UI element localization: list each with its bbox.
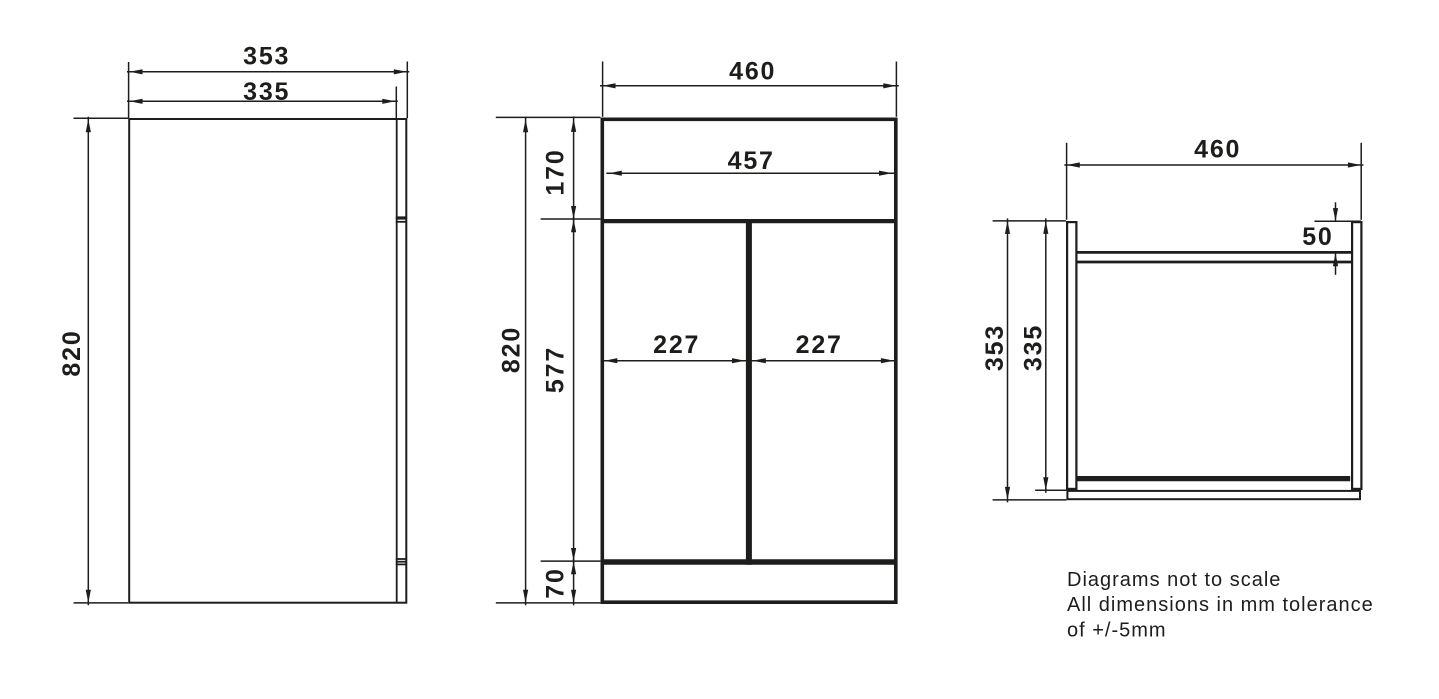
- svg-text:577: 577: [541, 346, 569, 393]
- svg-text:353: 353: [243, 43, 290, 71]
- svg-text:70: 70: [541, 567, 569, 598]
- svg-text:353: 353: [981, 324, 1009, 371]
- svg-text:Diagrams not to scale: Diagrams not to scale: [1067, 569, 1281, 591]
- svg-text:820: 820: [497, 326, 525, 373]
- svg-text:170: 170: [541, 148, 569, 195]
- svg-text:50: 50: [1302, 223, 1333, 251]
- svg-text:All dimensions in mm tolerance: All dimensions in mm tolerance: [1067, 594, 1374, 616]
- svg-text:457: 457: [728, 147, 775, 175]
- svg-text:820: 820: [58, 329, 86, 376]
- svg-text:335: 335: [1020, 324, 1048, 371]
- svg-text:460: 460: [1194, 135, 1241, 163]
- svg-text:of +/-5mm: of +/-5mm: [1067, 619, 1167, 641]
- svg-text:460: 460: [729, 58, 776, 86]
- svg-text:227: 227: [653, 331, 700, 359]
- svg-text:335: 335: [243, 78, 290, 106]
- svg-text:227: 227: [796, 331, 843, 359]
